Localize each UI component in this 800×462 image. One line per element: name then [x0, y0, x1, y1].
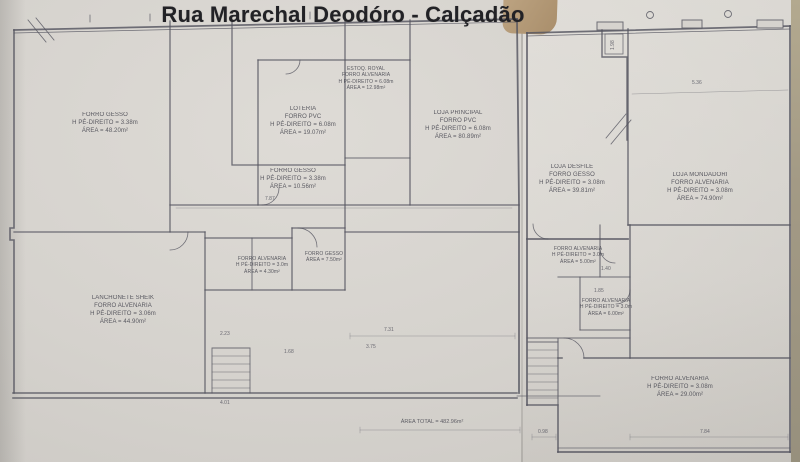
- room-ceiling: FORRO ALVENARIA: [63, 303, 183, 311]
- room-area: ÁREA = 10.56m²: [248, 184, 338, 192]
- room-label-lanchonete-sheik: LANCHONETE SHEIK FORRO ALVENARIA H PÉ-DI…: [63, 295, 183, 327]
- room-ceiling: FORRO PVC: [413, 118, 503, 126]
- right-building-inner-walls: [527, 29, 790, 405]
- page-title: Rua Marechal Deodóro - Calçadão: [158, 2, 528, 28]
- room-area: ÁREA = 80.89m²: [413, 134, 503, 142]
- room-label-deposito-1: FORRO ALVENARIA H PÉ-DIREITO = 3.0m ÁREA…: [548, 246, 608, 265]
- room-label-loja-mondadori: LOJA MONDADORI FORRO ALVENARIA H PÉ-DIRE…: [650, 172, 750, 204]
- dimension-label: 4.01: [220, 400, 230, 406]
- room-name: FORRO GESSO: [45, 112, 165, 120]
- room-label-forro-gesso-frente: FORRO GESSO H PÉ-DIREITO = 3.38m ÁREA = …: [45, 112, 165, 136]
- room-area: ÁREA = 7.50m²: [294, 257, 354, 263]
- floorplan-photo: Rua Marechal Deodóro - Calçadão FORRO GE…: [0, 0, 800, 462]
- dimension-label: 0.98: [538, 429, 548, 435]
- room-ceiling: FORRO ALVENARIA: [625, 376, 735, 384]
- room-label-wc-1: FORRO ALVENARIA H PÉ-DIREITO = 3.0m ÁREA…: [227, 256, 297, 275]
- dimension-label: 1.98: [610, 40, 616, 50]
- room-area: ÁREA = 48.20m²: [45, 128, 165, 136]
- room-area: ÁREA = 74.90m²: [650, 196, 750, 204]
- room-name: LOJA MONDADORI: [650, 172, 750, 180]
- room-ceiling-height: H PÉ-DIREITO = 3.38m: [248, 176, 338, 184]
- room-area: ÁREA = 5.00m²: [548, 259, 608, 265]
- window-3: [757, 20, 783, 28]
- room-area: ÁREA = 6.00m²: [576, 311, 636, 317]
- dimension-label: 2.23: [220, 331, 230, 337]
- room-label-fundos: FORRO ALVENARIA H PÉ-DIREITO = 3.08m ÁRE…: [625, 376, 735, 400]
- room-area: ÁREA = 29.00m²: [625, 392, 735, 400]
- room-area: ÁREA = 39.81m²: [527, 188, 617, 196]
- room-ceiling-height: H PÉ-DIREITO = 6.08m: [413, 126, 503, 134]
- room-label-loja-principal: LOJA PRINCIPAL FORRO PVC H PÉ-DIREITO = …: [413, 110, 503, 142]
- dimension-label: 7.84: [700, 429, 710, 435]
- room-area: ÁREA = 12.98m²: [321, 85, 411, 91]
- room-label-forro-gesso-meio: FORRO GESSO H PÉ-DIREITO = 3.38m ÁREA = …: [248, 168, 338, 192]
- dimension-label: 5.36: [692, 80, 702, 86]
- dimension-label: 1.85: [594, 288, 604, 294]
- room-ceiling-height: H PÉ-DIREITO = 3.08m: [650, 188, 750, 196]
- room-area: ÁREA = 4.30m²: [227, 269, 297, 275]
- room-label-deposito-2: FORRO ALVENARIA H PÉ-DIREITO = 3.0m ÁREA…: [576, 298, 636, 317]
- window-2: [682, 20, 702, 28]
- room-name: FORRO GESSO: [248, 168, 338, 176]
- room-ceiling-height: H PÉ-DIREITO = 3.38m: [45, 120, 165, 128]
- dimension-label: 7.31: [384, 327, 394, 333]
- room-ceiling-height: H PÉ-DIREITO = 3.0m: [548, 252, 608, 258]
- window-1: [597, 22, 623, 30]
- room-ceiling-height: H PÉ-DIREITO = 3.08m: [527, 180, 617, 188]
- room-ceiling-height: H PÉ-DIREITO = 6.08m: [258, 122, 348, 130]
- room-ceiling: FORRO GESSO: [527, 172, 617, 180]
- room-ceiling-height: H PÉ-DIREITO = 3.08m: [625, 384, 735, 392]
- right-building-stairs: [528, 342, 558, 398]
- left-building-inner-walls: [14, 20, 519, 393]
- column-marker-2: [725, 11, 732, 18]
- room-ceiling: FORRO PVC: [258, 114, 348, 122]
- room-name: LANCHONETE SHEIK: [63, 295, 183, 303]
- room-area: ÁREA = 44.90m²: [63, 319, 183, 327]
- column-marker-1: [647, 12, 654, 19]
- room-name: LOJA PRINCIPAL: [413, 110, 503, 118]
- room-label-loja-desfile: LOJA DESFILE FORRO GESSO H PÉ-DIREITO = …: [527, 164, 617, 196]
- left-building-stairs: [212, 348, 250, 393]
- room-label-loteria: LOTERIA FORRO PVC H PÉ-DIREITO = 6.08m Á…: [258, 106, 348, 138]
- room-label-estoque: ESTOQ. ROYAL FORRO ALVENARIA H PÉ-DIREIT…: [321, 66, 411, 91]
- room-ceiling: FORRO ALVENARIA: [650, 180, 750, 188]
- room-ceiling-height: H PÉ-DIREITO = 3.06m: [63, 311, 183, 319]
- room-ceiling-height: H PÉ-DIREITO = 3.0m: [227, 262, 297, 268]
- room-name: LOJA DESFILE: [527, 164, 617, 172]
- dimension-label: 1.68: [284, 349, 294, 355]
- room-ceiling-height: H PÉ-DIREITO = 3.0m: [576, 304, 636, 310]
- room-area: ÁREA = 19.07m²: [258, 130, 348, 138]
- dimension-label: 1.40: [601, 266, 611, 272]
- area-total-label: ÁREA TOTAL = 482.96m²: [362, 419, 502, 425]
- room-name: LOTERIA: [258, 106, 348, 114]
- room-label-wc-2: FORRO GESSO ÁREA = 7.50m²: [294, 251, 354, 264]
- dimension-label: 7.87: [265, 196, 275, 202]
- left-building-door-arcs: [170, 60, 317, 250]
- dimension-label: 3.75: [366, 344, 376, 350]
